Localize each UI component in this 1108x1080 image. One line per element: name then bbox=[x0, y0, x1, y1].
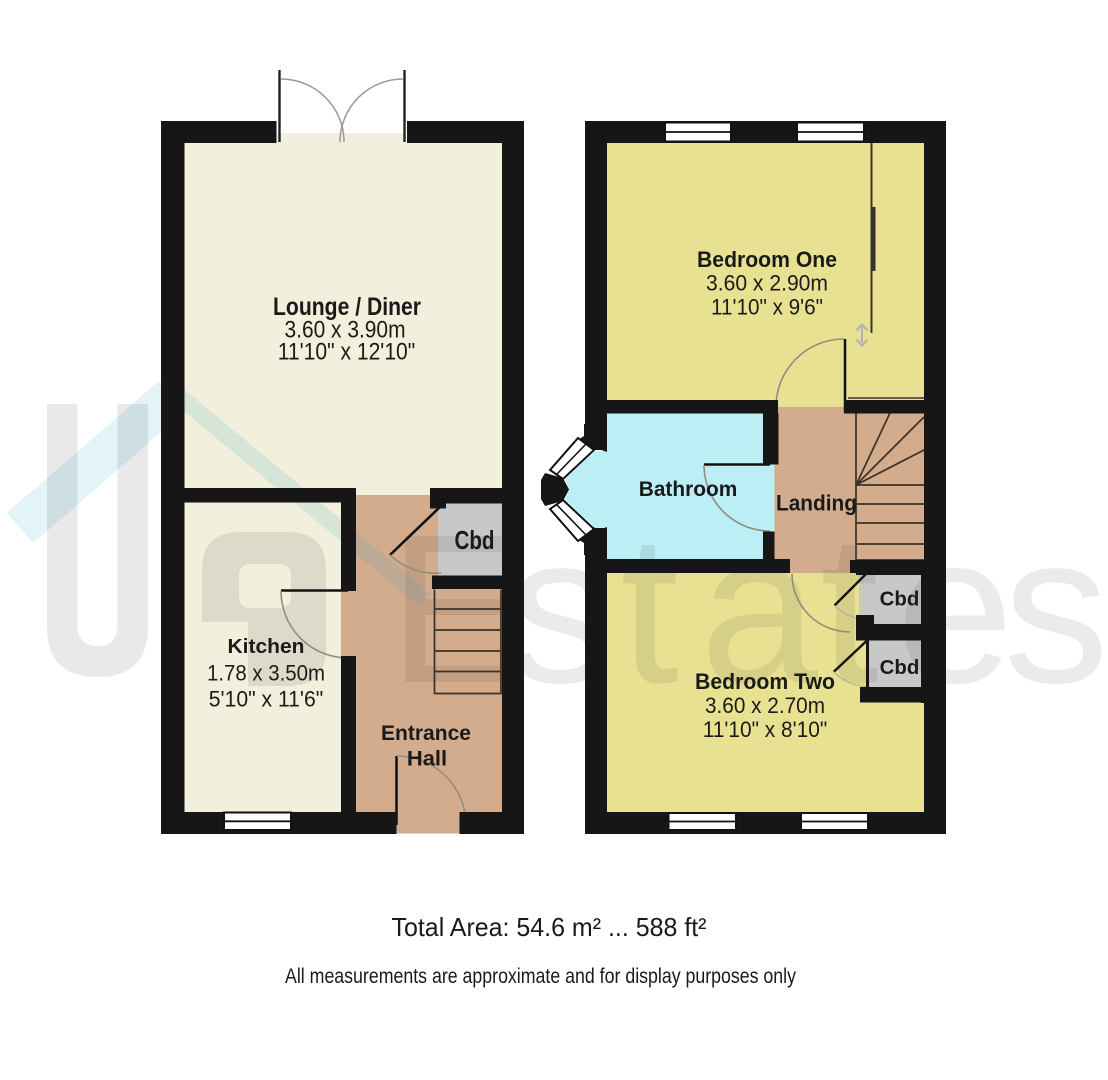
svg-text:Bedroom One: Bedroom One bbox=[697, 247, 837, 272]
svg-text:1.78 x 3.50m: 1.78 x 3.50m bbox=[207, 661, 325, 686]
svg-text:11'10" x 8'10": 11'10" x 8'10" bbox=[703, 717, 828, 742]
svg-text:Hall: Hall bbox=[407, 747, 447, 771]
svg-text:5'10" x 11'6": 5'10" x 11'6" bbox=[209, 687, 324, 712]
svg-text:Landing: Landing bbox=[776, 491, 857, 516]
svg-text:Bedroom Two: Bedroom Two bbox=[695, 669, 835, 694]
svg-text:3.60 x 2.70m: 3.60 x 2.70m bbox=[705, 693, 825, 718]
svg-text:Bathroom: Bathroom bbox=[639, 478, 738, 501]
svg-text:All measurements are approxima: All measurements are approximate and for… bbox=[285, 964, 796, 988]
svg-text:s: s bbox=[1003, 490, 1108, 727]
svg-text:t: t bbox=[620, 490, 679, 727]
svg-text:Total Area: 54.6 m² ... 588 ft: Total Area: 54.6 m² ... 588 ft² bbox=[392, 912, 707, 942]
svg-text:Cbd: Cbd bbox=[880, 657, 920, 679]
svg-text:11'10" x 9'6": 11'10" x 9'6" bbox=[711, 295, 823, 320]
svg-text:Cbd: Cbd bbox=[455, 525, 495, 555]
svg-text:Kitchen: Kitchen bbox=[228, 636, 305, 658]
svg-text:Cbd: Cbd bbox=[880, 589, 920, 611]
svg-text:3.60 x 2.90m: 3.60 x 2.90m bbox=[706, 271, 828, 296]
svg-text:11'10" x 12'10": 11'10" x 12'10" bbox=[278, 339, 416, 366]
svg-text:Entrance: Entrance bbox=[381, 721, 471, 745]
